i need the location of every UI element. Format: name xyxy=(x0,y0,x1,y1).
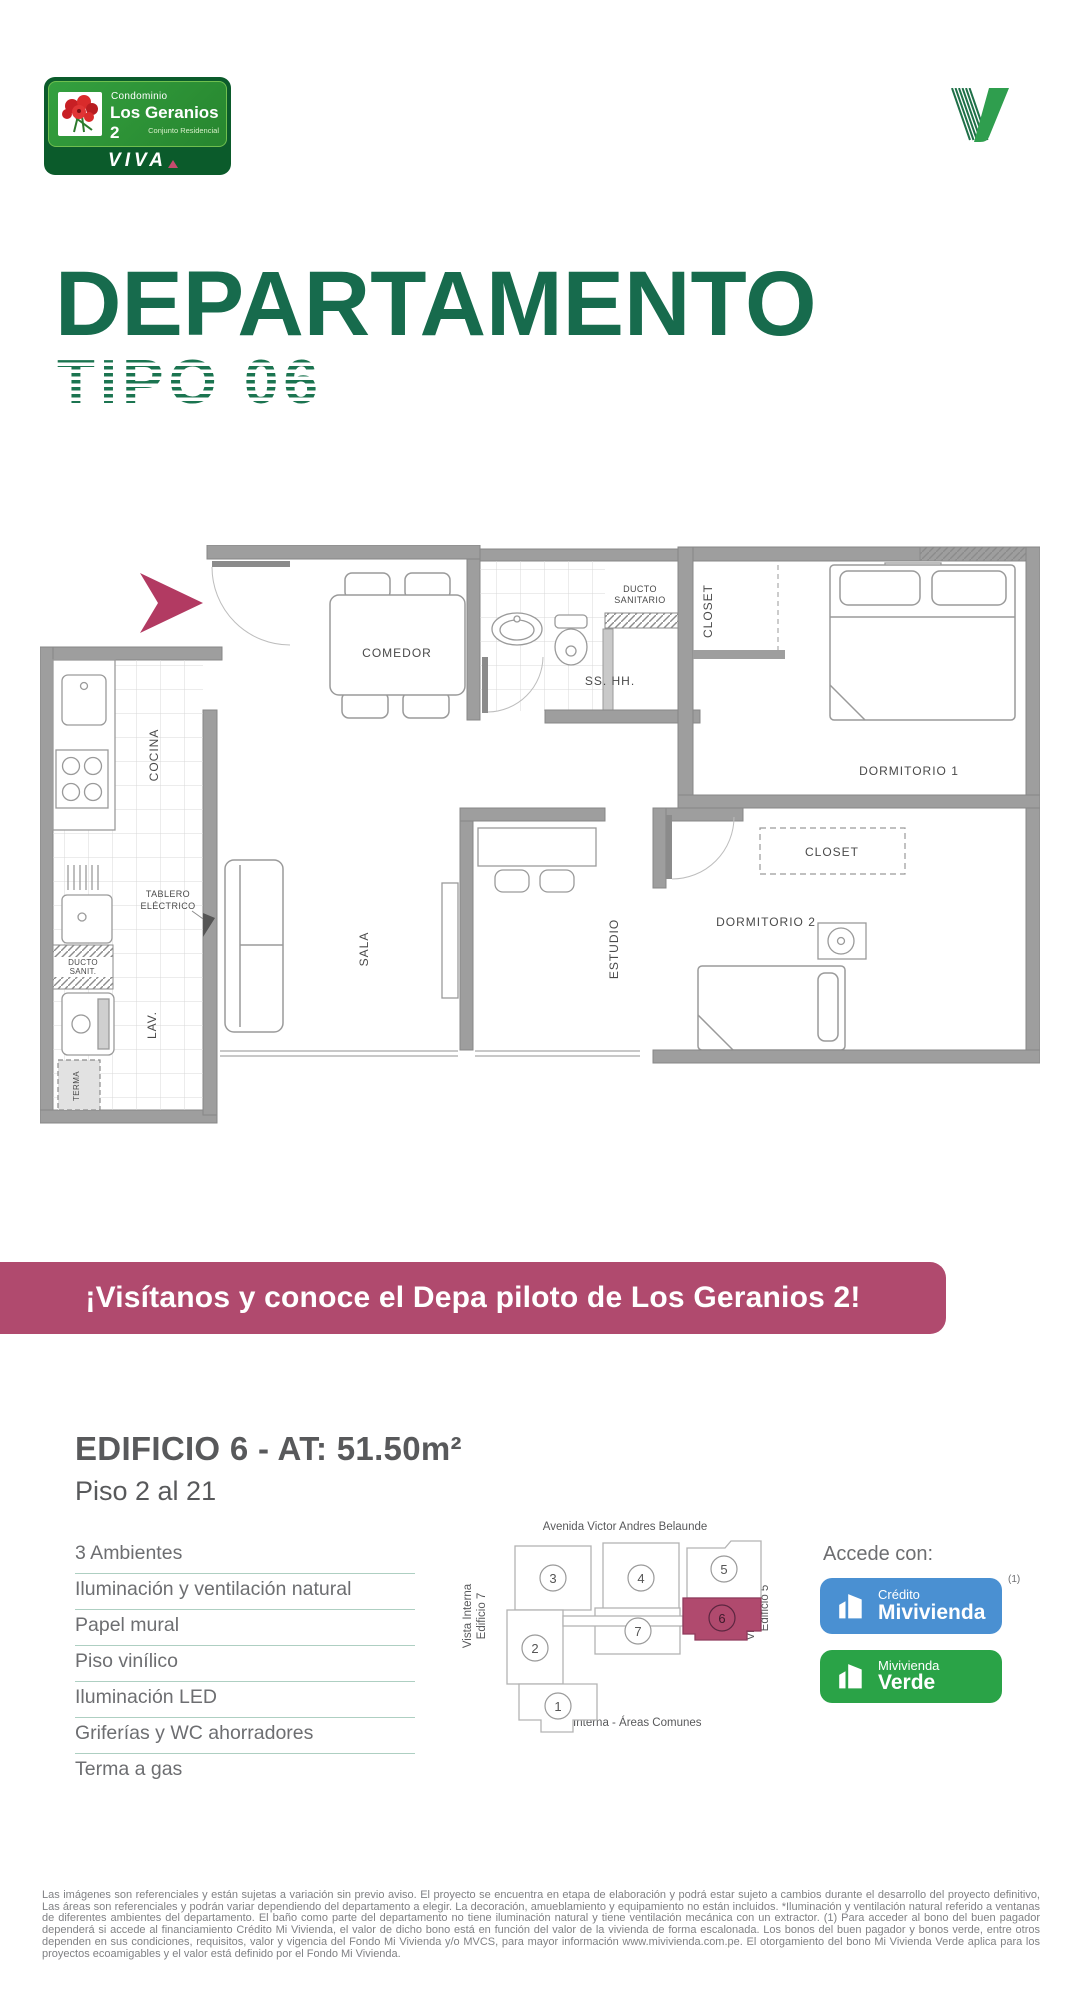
label-closet-2: CLOSET xyxy=(805,845,859,859)
mivivienda-house-icon xyxy=(832,1656,868,1697)
svg-text:6: 6 xyxy=(718,1611,725,1626)
logo-condominio-text: Condominio xyxy=(111,91,167,102)
bathroom-sink xyxy=(492,613,542,645)
tv-console xyxy=(442,883,458,998)
legal-disclaimer: Las imágenes son referenciales y están s… xyxy=(42,1890,1040,1960)
credito-mivivienda-badge: Crédito Mivivienda xyxy=(820,1578,1002,1634)
bed-dormitorio-2 xyxy=(698,966,845,1050)
floor-plan: COMEDOR DUCTO SANITARIO SS. HH. CLOSET D… xyxy=(40,545,1040,1135)
label-comedor: COMEDOR xyxy=(362,646,432,660)
label-ducto-sanit: DUCTO xyxy=(68,958,98,967)
building-floors: Piso 2 al 21 xyxy=(75,1476,216,1507)
entrance-arrow xyxy=(140,573,203,633)
bath-door-leaf xyxy=(482,657,488,713)
visit-banner: ¡Visítanos y conoce el Depa piloto de Lo… xyxy=(0,1262,946,1334)
feature-item: Terma a gas xyxy=(75,1754,415,1789)
svg-text:SANITARIO: SANITARIO xyxy=(614,595,665,605)
label-dormitorio-1: DORMITORIO 1 xyxy=(859,764,959,778)
svg-text:3: 3 xyxy=(549,1571,556,1586)
svg-text:1: 1 xyxy=(554,1699,561,1714)
feature-item: Iluminación LED xyxy=(75,1682,415,1718)
stove xyxy=(56,750,108,808)
left-view-label: Vista Interna xyxy=(462,1583,474,1648)
desk xyxy=(478,828,596,892)
viva-v-logo xyxy=(950,88,1015,142)
visit-banner-text: ¡Visítanos y conoce el Depa piloto de Lo… xyxy=(85,1281,860,1315)
label-lav: LAV. xyxy=(145,1011,159,1039)
logo-subtitle: Conjunto Residencial xyxy=(148,126,219,135)
viva-wordmark: VIVA xyxy=(45,150,230,172)
window-lines xyxy=(220,1051,640,1056)
sofa xyxy=(225,860,283,1032)
verde-line1: Mivivienda xyxy=(878,1659,939,1673)
svg-text:5: 5 xyxy=(720,1562,727,1577)
label-cocina: COCINA xyxy=(147,729,161,782)
dorm2-door-leaf xyxy=(666,815,672,879)
svg-text:4: 4 xyxy=(637,1571,644,1586)
building-title: EDIFICIO 6 - AT: 51.50m² xyxy=(75,1430,462,1468)
mivivienda-house-icon xyxy=(832,1586,868,1627)
footnote-marker: (1) xyxy=(1008,1574,1020,1585)
logo-project-name: Los Geranios 2 xyxy=(110,103,226,143)
nightstand-lamp-2 xyxy=(818,923,866,959)
svg-text:ELÉCTRICO: ELÉCTRICO xyxy=(140,901,195,911)
condominio-logo: Condominio Los Geranios 2 Conjunto Resid… xyxy=(45,78,230,174)
page-subtitle: TIPO 06 xyxy=(57,352,323,414)
svg-text:SANIT.: SANIT. xyxy=(70,967,97,976)
label-sala: SALA xyxy=(357,932,371,967)
condominio-logo-panel: Condominio Los Geranios 2 Conjunto Resid… xyxy=(48,81,227,147)
geranium-flower-image xyxy=(58,92,102,136)
svg-text:2: 2 xyxy=(531,1641,538,1656)
svg-text:Edificio 7: Edificio 7 xyxy=(476,1593,488,1640)
mivivienda-verde-badge: Mivivienda Verde xyxy=(820,1650,1002,1703)
label-estudio: ESTUDIO xyxy=(607,919,621,979)
avenue-label: Avenida Victor Andres Belaunde xyxy=(543,1521,708,1533)
credito-line1: Crédito xyxy=(878,1588,985,1602)
laundry-sink xyxy=(62,895,112,943)
washing-machine xyxy=(62,993,114,1055)
bed-dormitorio-1 xyxy=(830,565,1015,720)
feature-list: 3 Ambientes Iluminación y ventilación na… xyxy=(75,1538,415,1789)
viva-triangle-accent xyxy=(168,160,178,168)
feature-item: Griferías y WC ahorradores xyxy=(75,1718,415,1754)
feature-item: Iluminación y ventilación natural xyxy=(75,1574,415,1610)
label-tablero: TABLERO xyxy=(146,889,190,899)
feature-item: Piso vinílico xyxy=(75,1646,415,1682)
feature-item: Papel mural xyxy=(75,1610,415,1646)
label-ducto-sanitario: DUCTO xyxy=(623,584,657,594)
credito-line2: Mivivienda xyxy=(878,1602,985,1624)
access-title: Accede con: xyxy=(823,1543,933,1566)
label-dormitorio-2: DORMITORIO 2 xyxy=(716,915,816,929)
label-closet-1: CLOSET xyxy=(701,584,715,638)
entry-door-leaf xyxy=(212,561,290,567)
toilet xyxy=(555,615,587,665)
entry-door-arc xyxy=(212,567,290,645)
svg-text:7: 7 xyxy=(634,1624,641,1639)
label-terma: TERMA xyxy=(72,1071,81,1101)
verde-line2: Verde xyxy=(878,1672,939,1694)
feature-item: 3 Ambientes xyxy=(75,1538,415,1574)
label-ss-hh: SS. HH. xyxy=(585,674,635,688)
site-map: Avenida Victor Andres Belaunde Vista Int… xyxy=(455,1498,775,1738)
page-title: DEPARTAMENTO xyxy=(55,258,817,350)
